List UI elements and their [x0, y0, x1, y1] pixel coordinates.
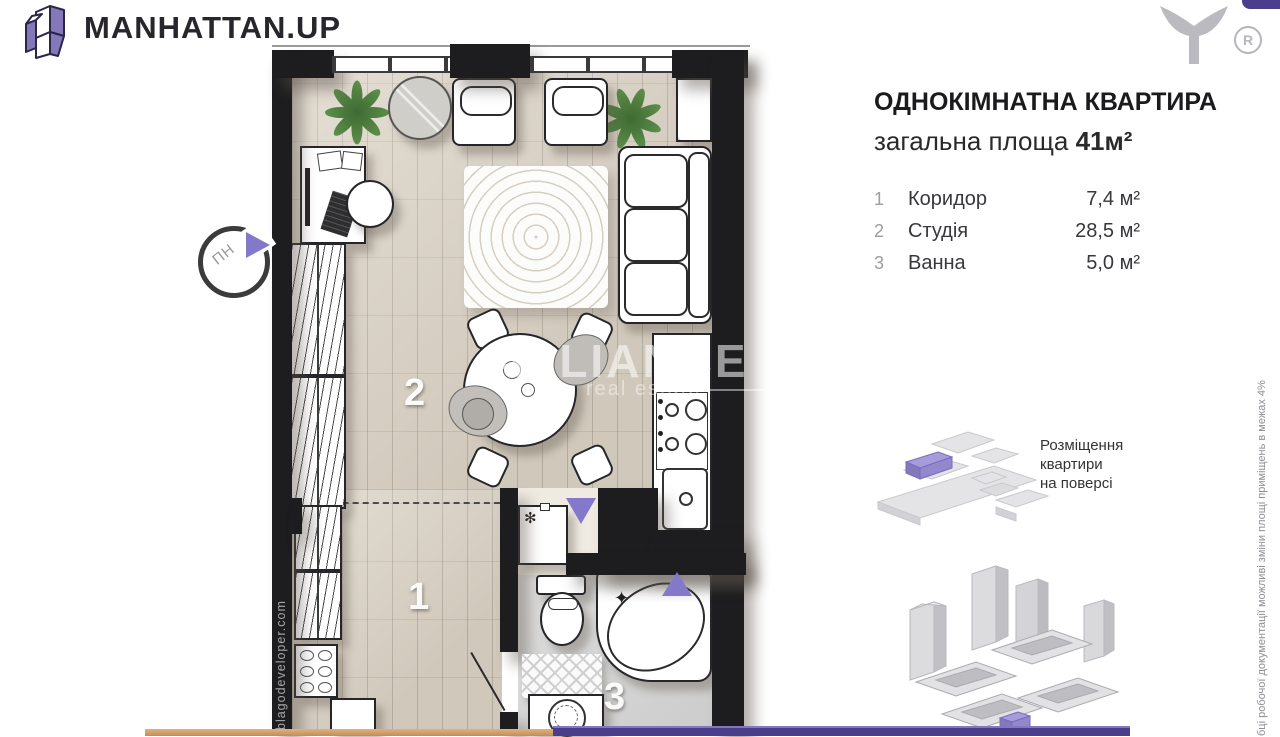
window	[530, 56, 672, 73]
plant	[616, 86, 676, 150]
sparkle-icon: ✦	[614, 588, 629, 609]
window	[332, 56, 450, 73]
room-list-row: 2 Студія 28,5 м²	[874, 215, 1140, 247]
wall	[450, 44, 530, 78]
floor-plan-flyer: { "brand": { "logo_text": "MANHATTAN.UP"…	[0, 0, 1280, 736]
registered-mark: R	[1234, 26, 1262, 54]
toilet-bowl	[540, 592, 584, 646]
room-row-num: 1	[874, 189, 908, 210]
bottom-bar-purple	[553, 726, 1130, 736]
apartment-total-area: загальна площа 41м²	[874, 126, 1132, 157]
tree-logo-icon	[1146, 0, 1242, 64]
room-label-corridor: 1	[408, 576, 429, 619]
bath-arrow-icon	[662, 572, 692, 596]
apartment-title: ОДНОКІМНАТНА КВАРТИРА	[874, 88, 1217, 117]
watermark-subtitle: real estate	[586, 378, 701, 401]
mandala-rug	[464, 166, 608, 308]
bathtub: ✦	[596, 570, 712, 682]
desk-chair	[346, 180, 394, 228]
person-head	[462, 398, 494, 430]
wall	[500, 488, 518, 652]
wall	[712, 50, 744, 736]
room-row-area: 5,0 м²	[1086, 252, 1140, 275]
north-arrow-icon	[246, 232, 270, 258]
developer-site-vertical-text: blagodeveloper.com	[274, 566, 288, 730]
brand-logo-text: MANHATTAN.UP	[84, 10, 341, 46]
paper	[341, 151, 363, 171]
monitor	[305, 168, 310, 226]
room-row-name: Ванна	[908, 252, 1086, 275]
wall	[566, 553, 746, 575]
kitchen-stove	[656, 392, 708, 470]
room-list-row: 1 Коридор 7,4 м²	[874, 183, 1140, 215]
coffee-table	[388, 76, 452, 140]
room-row-name: Коридор	[908, 188, 1086, 211]
total-area-label: загальна площа	[874, 126, 1076, 156]
floor-location-illustration	[876, 404, 1052, 554]
floor-location-caption: Розміщення квартири на поверсі	[1040, 436, 1160, 493]
disclaimer-vertical-text: бці робочої документації можливі зміни п…	[1256, 344, 1268, 736]
freeze-icon: ✻	[524, 509, 537, 527]
room-row-name: Студія	[908, 220, 1075, 243]
armchair	[452, 78, 516, 146]
corner-cabinet	[676, 78, 712, 142]
washing-machine-niche: ✻	[518, 505, 568, 565]
room-row-area: 28,5 м²	[1075, 220, 1140, 243]
wardrobe	[290, 376, 346, 509]
wardrobe	[290, 243, 346, 376]
brand-logo-icon	[16, 2, 78, 60]
bottom-bar-orange	[145, 729, 557, 736]
wall	[292, 498, 302, 534]
kitchen-sink	[662, 468, 708, 530]
room-list-row: 3 Ванна 5,0 м²	[874, 247, 1140, 279]
watermark-dash	[700, 389, 770, 391]
entry-arrow-icon	[566, 498, 596, 524]
paper	[317, 150, 343, 171]
room-row-num: 2	[874, 221, 908, 242]
room-label-studio: 2	[404, 372, 425, 415]
total-area-value: 41м²	[1076, 126, 1133, 156]
wall	[272, 50, 334, 78]
bath-rug	[522, 654, 602, 698]
shoe-rack	[294, 644, 338, 698]
corner-accent	[1242, 0, 1280, 9]
armchair	[544, 78, 608, 146]
room-row-area: 7,4 м²	[1086, 188, 1140, 211]
sofa	[618, 146, 712, 324]
city-illustration	[888, 546, 1138, 736]
hall-wardrobe	[294, 571, 342, 640]
room-row-num: 3	[874, 253, 908, 274]
room-label-bath: 3	[604, 676, 625, 719]
compass-icon: ПН	[198, 226, 270, 298]
